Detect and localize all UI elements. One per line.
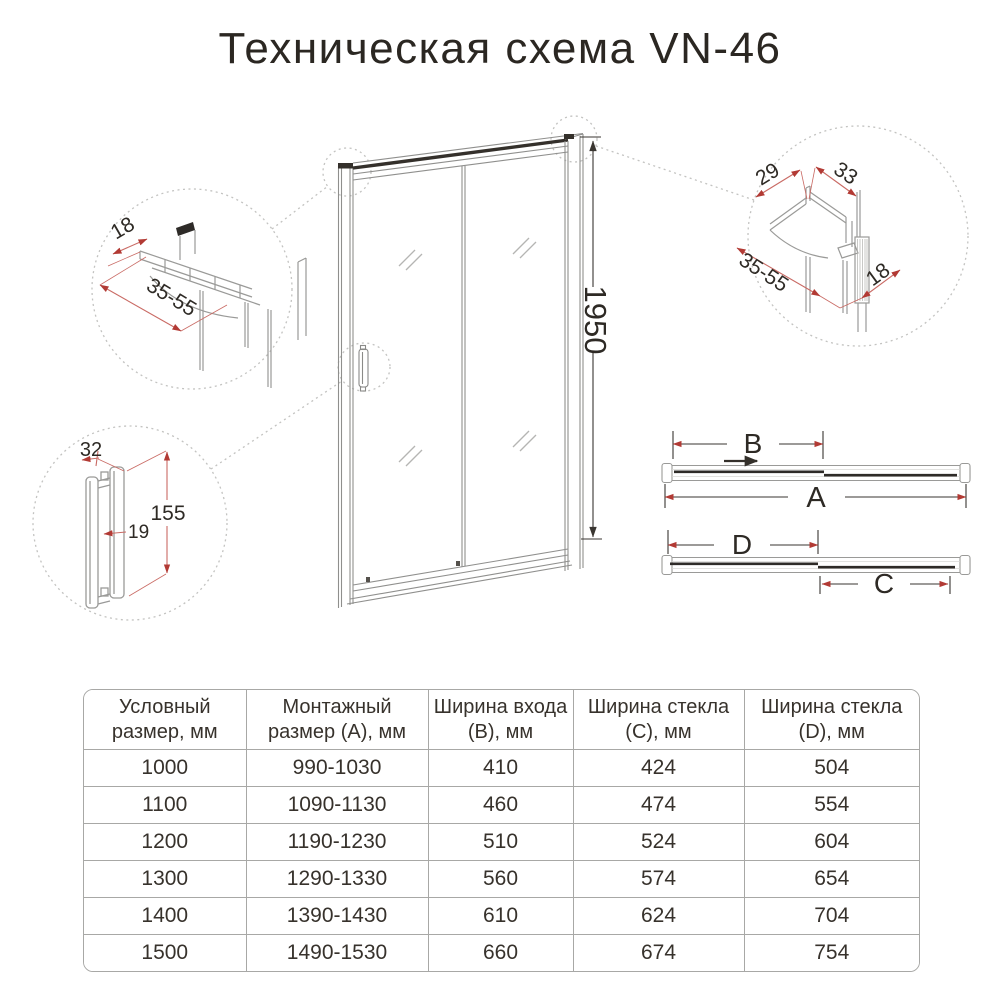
table-cell: 560 — [428, 861, 573, 898]
table-cell: 1200 — [84, 824, 246, 861]
door-height-dim-label: 1950 — [578, 286, 613, 355]
table-cell: 504 — [744, 750, 919, 787]
table-cell: 654 — [744, 861, 919, 898]
callout-connector-handle — [211, 381, 342, 469]
top-view-label-a: A — [806, 482, 826, 514]
table-cell: 1090-1130 — [246, 787, 428, 824]
table-cell: 1100 — [84, 787, 246, 824]
door-roller-left — [366, 577, 370, 582]
top-rail-depth-label: 18 — [107, 213, 139, 245]
table-cell: 624 — [573, 898, 744, 935]
wall-profile-range-label: 35-55 — [735, 248, 793, 297]
dimension-b: B — [673, 428, 823, 459]
table-cell: 610 — [428, 898, 573, 935]
callout-wall-profile: 29 33 35-55 18 — [735, 158, 900, 332]
table-cell: 460 — [428, 787, 573, 824]
door-front-view — [338, 134, 583, 609]
header-cell-glass-d-width: Ширина стекла (D), мм — [744, 690, 919, 750]
technical-diagram-svg: 1950 B A — [0, 95, 1000, 690]
callout-handle-detail: 32 155 19 — [80, 439, 186, 608]
table-cell: 554 — [744, 787, 919, 824]
table-cell: 1400 — [84, 898, 246, 935]
callout-connector-left — [272, 186, 328, 229]
table-cell: 1490-1530 — [246, 935, 428, 972]
table-cell: 410 — [428, 750, 573, 787]
handle-height-label: 155 — [150, 502, 185, 525]
table-row: 1100 1090-1130 460 474 554 — [84, 787, 919, 824]
sizes-table: Условный размер, мм Монтажный размер (А)… — [84, 690, 919, 971]
table-cell: 990-1030 — [246, 750, 428, 787]
table-cell: 1300 — [84, 861, 246, 898]
top-view-label-c: C — [874, 568, 894, 599]
table-header-row: Условный размер, мм Монтажный размер (А)… — [84, 690, 919, 750]
handle-gap-label: 19 — [128, 522, 149, 543]
door-top-track — [353, 140, 568, 168]
table-cell: 604 — [744, 824, 919, 861]
table-cell: 704 — [744, 898, 919, 935]
table-row: 1400 1390-1430 610 624 704 — [84, 898, 919, 935]
zoom-source-circle-door-top-left — [323, 148, 371, 196]
sizes-table-wrapper: Условный размер, мм Монтажный размер (А)… — [83, 689, 920, 972]
zoom-source-circle-door-handle — [338, 343, 390, 391]
callout-circles-and-connectors — [33, 116, 968, 620]
door-roller-right — [456, 561, 460, 566]
dimension-d: D — [668, 529, 818, 560]
callout-top-rail-profile: 18 35-55 — [100, 213, 306, 388]
header-cell-entry-width: Ширина входа (B), мм — [428, 690, 573, 750]
table-cell: 1390-1430 — [246, 898, 428, 935]
table-cell: 1290-1330 — [246, 861, 428, 898]
table-cell: 754 — [744, 935, 919, 972]
page-title: Техническая схема VN-46 — [0, 24, 1000, 74]
wall-profile-33-label: 33 — [829, 158, 861, 190]
table-row: 1000 990-1030 410 424 504 — [84, 750, 919, 787]
top-view-bar-cd: D C — [662, 529, 970, 599]
table-cell: 510 — [428, 824, 573, 861]
table-cell: 524 — [573, 824, 744, 861]
handle-width-label: 32 — [80, 439, 102, 461]
table-row: 1200 1190-1230 510 524 604 — [84, 824, 919, 861]
table-cell: 474 — [573, 787, 744, 824]
glass-reflection-marks — [399, 238, 536, 466]
table-row: 1300 1290-1330 560 574 654 — [84, 861, 919, 898]
top-view-label-b: B — [744, 428, 763, 459]
header-cell-mounting-size: Монтажный размер (А), мм — [246, 690, 428, 750]
table-cell: 1500 — [84, 935, 246, 972]
door-top-left-cap — [338, 163, 353, 169]
top-view-bar-ab: B A — [662, 428, 970, 514]
table-cell: 424 — [573, 750, 744, 787]
callout-connector-right — [596, 146, 754, 200]
roller-block — [176, 222, 195, 236]
technical-scheme-page: Техническая схема VN-46 — [0, 0, 1000, 1000]
table-cell: 660 — [428, 935, 573, 972]
door-top-right-cap — [564, 134, 574, 139]
door-handle — [359, 346, 368, 392]
table-row: 1500 1490-1530 660 674 754 — [84, 935, 919, 972]
wall-profile-29-label: 29 — [752, 159, 784, 191]
header-cell-nominal-size: Условный размер, мм — [84, 690, 246, 750]
table-cell: 674 — [573, 935, 744, 972]
table-cell: 1190-1230 — [246, 824, 428, 861]
dimension-a: A — [665, 482, 966, 514]
table-cell: 574 — [573, 861, 744, 898]
header-cell-glass-c-width: Ширина стекла (C), мм — [573, 690, 744, 750]
top-view-label-d: D — [732, 529, 752, 560]
table-cell: 1000 — [84, 750, 246, 787]
